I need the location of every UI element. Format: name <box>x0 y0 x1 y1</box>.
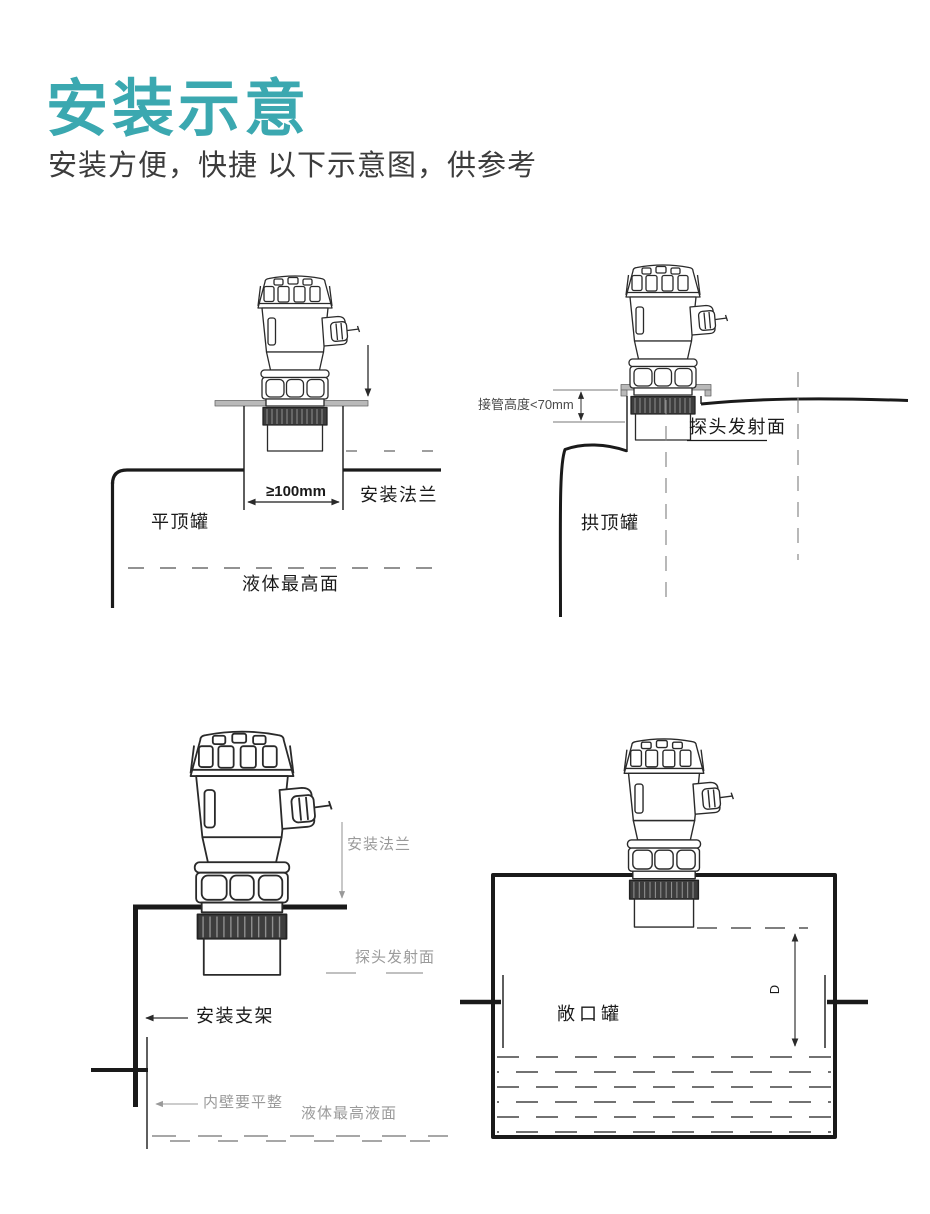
ultrasonic-level-sensor <box>624 739 733 927</box>
arch-tank-name-label: 拱顶罐 <box>581 514 640 532</box>
diagram-canvas <box>0 0 930 1214</box>
ultrasonic-level-sensor <box>258 276 360 451</box>
flange-gap-dimension-label: ≥100mm <box>266 484 326 499</box>
ultrasonic-level-sensor <box>191 732 332 975</box>
flange-label: 安装法兰 <box>360 486 438 504</box>
dome-right <box>701 399 908 404</box>
open-tank-name-label: 敞口罐 <box>557 1005 623 1023</box>
liquid-dashes <box>497 1057 831 1132</box>
flat-tank-name-label: 平顶罐 <box>151 513 210 531</box>
mounting-bracket-label: 安装支架 <box>196 1007 274 1025</box>
nozzle-height-dimension-label: 接管高度<70mm <box>478 398 574 411</box>
distance-d-label: D <box>768 985 781 994</box>
arch-top-tank-diagram <box>553 265 908 617</box>
open-tank-diagram <box>460 739 868 1137</box>
max-liquid-surface-label: 液体最高面 <box>242 575 340 593</box>
bracket-probe-face-label: 探头发射面 <box>355 950 435 965</box>
tank-top <box>113 470 442 484</box>
inner-wall-note-label: 内壁要平整 <box>203 1095 283 1110</box>
flat-top-tank-diagram <box>113 276 449 608</box>
bracket-mount-diagram <box>91 732 448 1149</box>
bracket-flange-label: 安装法兰 <box>347 837 411 852</box>
probe-emitting-face-label: 探头发射面 <box>689 418 787 436</box>
installation-schematic-page: 安装示意 安装方便，快捷 以下示意图，供参考 <box>0 0 930 1214</box>
bracket-max-liquid-label: 液体最高液面 <box>301 1106 397 1121</box>
ultrasonic-level-sensor <box>626 265 728 440</box>
